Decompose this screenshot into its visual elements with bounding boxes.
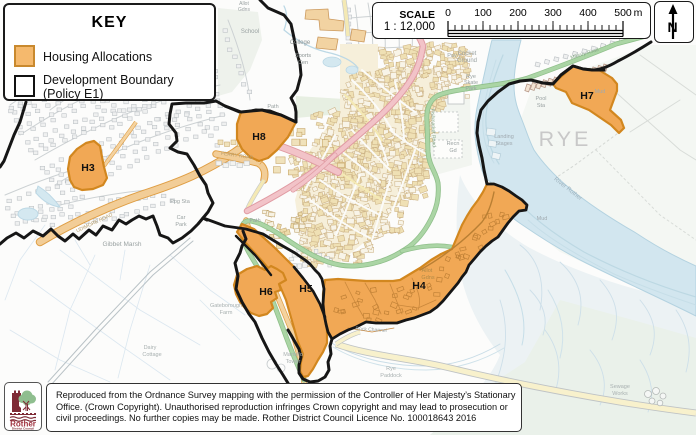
svg-text:Sewage: Sewage — [610, 384, 630, 390]
svg-text:Park: Park — [465, 86, 477, 92]
svg-text:Allot: Allot — [422, 268, 433, 274]
svg-text:H8: H8 — [252, 131, 266, 143]
svg-text:Gd: Gd — [449, 148, 456, 154]
svg-text:Cen: Cen — [298, 60, 308, 66]
svg-text:H5: H5 — [299, 283, 313, 295]
svg-text:500: 500 — [614, 7, 632, 19]
svg-text:Gdns: Gdns — [238, 7, 250, 13]
svg-text:Tower: Tower — [286, 359, 301, 365]
svg-text:Pool: Pool — [535, 96, 546, 102]
svg-text:H6: H6 — [259, 286, 273, 298]
svg-text:District Council: District Council — [12, 427, 34, 431]
svg-text:Cottage: Cottage — [142, 352, 161, 358]
svg-text:RYE: RYE — [539, 127, 592, 151]
svg-text:Path: Path — [267, 104, 278, 110]
svg-text:Sports: Sports — [295, 53, 311, 59]
svg-text:Martello: Martello — [283, 352, 303, 358]
svg-text:Gateborough: Gateborough — [210, 303, 242, 309]
svg-text:Paddock: Paddock — [380, 373, 402, 379]
svg-text:Sta: Sta — [537, 103, 546, 109]
svg-text:Landing: Landing — [494, 134, 514, 140]
svg-text:School: School — [241, 29, 259, 35]
svg-text:Works: Works — [612, 391, 628, 397]
svg-text:H7: H7 — [580, 90, 594, 102]
svg-text:H3: H3 — [81, 162, 95, 174]
svg-text:100: 100 — [474, 7, 492, 19]
svg-text:Farm: Farm — [220, 310, 233, 316]
svg-text:N: N — [667, 19, 677, 35]
svg-text:Ground: Ground — [457, 58, 477, 64]
svg-text:Gibbet Marsh: Gibbet Marsh — [102, 241, 141, 248]
svg-text:300: 300 — [544, 7, 562, 19]
svg-text:Cricket: Cricket — [458, 51, 477, 57]
svg-text:Recn: Recn — [447, 141, 460, 147]
svg-text:Dairy: Dairy — [144, 345, 157, 351]
svg-text:H4: H4 — [412, 280, 426, 292]
svg-text:400: 400 — [579, 7, 597, 19]
svg-text:Pav: Pav — [447, 53, 457, 59]
svg-text:200: 200 — [509, 7, 527, 19]
svg-text:SCALE: SCALE — [399, 9, 435, 21]
svg-text:Rye: Rye — [386, 366, 396, 372]
svg-text:Path: Path — [249, 218, 260, 224]
svg-text:Car: Car — [177, 215, 186, 221]
svg-text:Mud: Mud — [537, 216, 548, 222]
svg-text:Ppg Sta: Ppg Sta — [170, 199, 191, 205]
svg-text:Stages: Stages — [495, 141, 512, 147]
svg-text:College: College — [290, 40, 311, 46]
svg-text:m: m — [634, 7, 643, 19]
svg-text:Park: Park — [175, 222, 187, 228]
svg-text:Mud: Mud — [595, 89, 606, 95]
svg-text:1 : 12,000: 1 : 12,000 — [384, 21, 435, 33]
svg-text:0: 0 — [445, 7, 451, 19]
